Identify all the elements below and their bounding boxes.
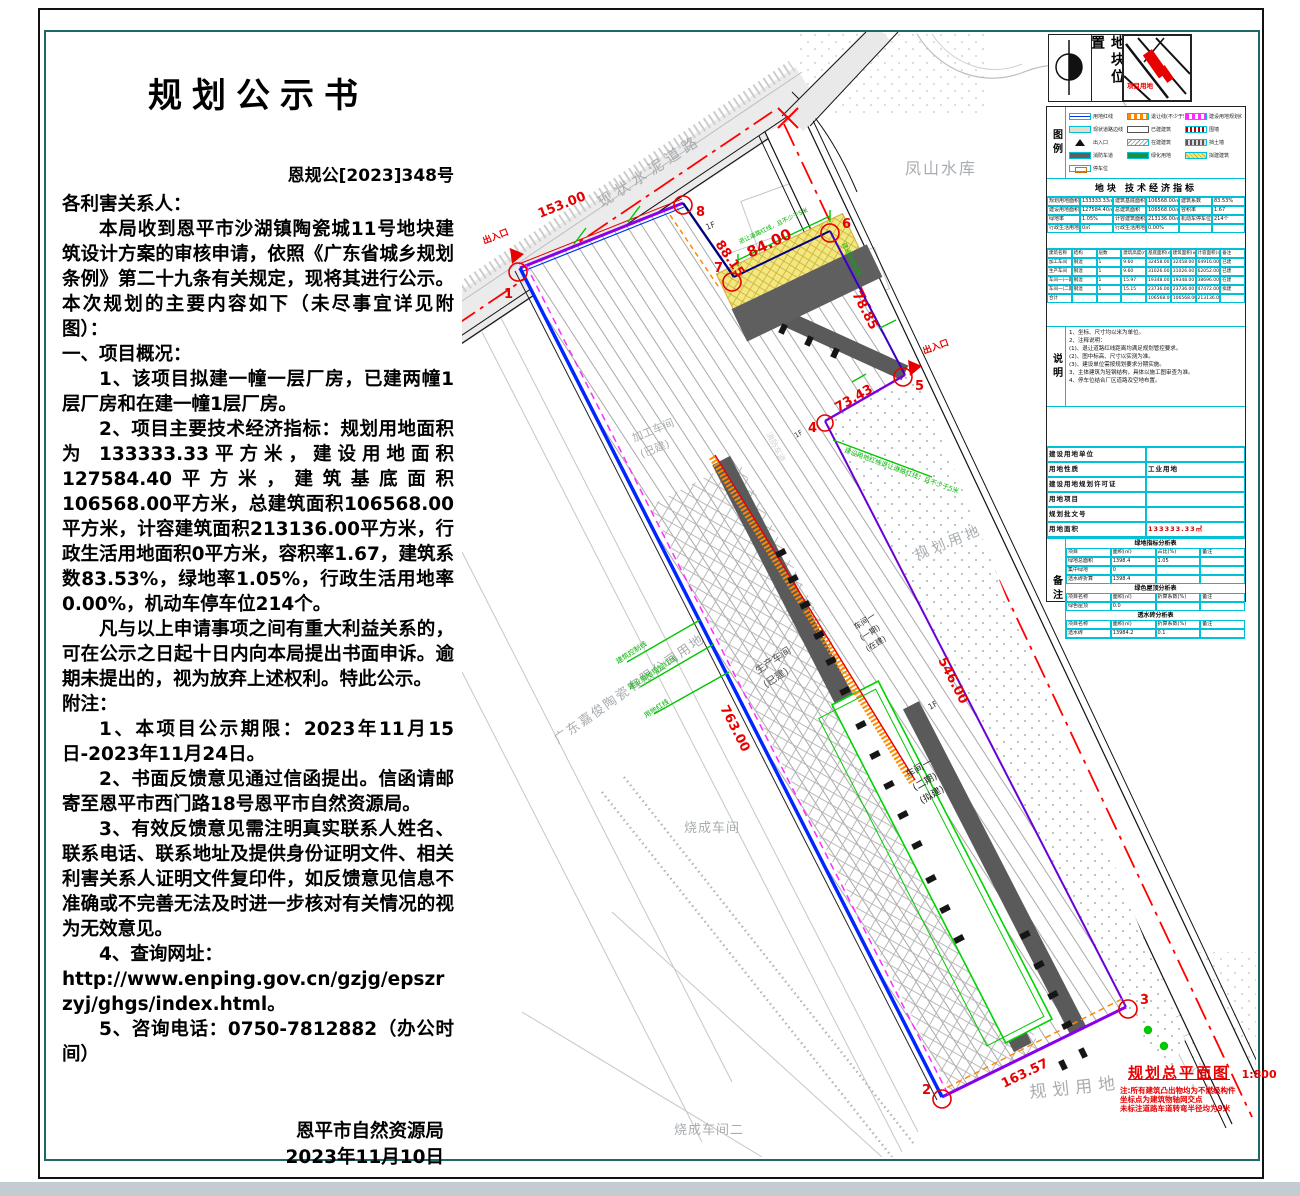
legend-item: 拟建建筑 (1185, 150, 1242, 162)
paragraph-item1: 1、该项目拟建一幢一层厂房，已建两幢1层厂房和在建一幢1层厂房。 (62, 367, 454, 417)
table-cell: 83.53% (1212, 197, 1245, 206)
table-cell: 0.00% (1146, 224, 1179, 233)
table-cell (1097, 294, 1122, 303)
table-cell: 23736.00 (1146, 285, 1171, 294)
table-cell: 面积(㎡) (1111, 620, 1156, 629)
note-2: 2、书面反馈意见通过信函提出。信函请邮寄至恩平市西门路18号恩平市自然资源局。 (62, 767, 454, 817)
table-cell: 213136.00㎡ (1146, 215, 1179, 224)
table-cell (1200, 557, 1245, 566)
legend-item: 现状道路边线 (1069, 123, 1126, 135)
table-cell: 0 (1111, 566, 1156, 575)
track-band-swatch-icon (1185, 139, 1207, 146)
red-band-swatch-icon (1185, 126, 1207, 133)
compass-box (1048, 34, 1092, 102)
table-cell: 钢混 (1072, 276, 1097, 285)
notes-title-box: 说明 (1047, 327, 1066, 406)
legend-item-label: 停车位 (1093, 165, 1108, 172)
table-cell (1212, 224, 1245, 233)
table-cell: 62052.00 (1196, 267, 1221, 276)
table-row: 规划用地面积133333.33㎡建筑基底面积106568.00㎡建筑系数83.5… (1047, 197, 1245, 206)
table-cell: 钢混 (1072, 267, 1097, 276)
firing-workshop2-label: 烧成车间二 (674, 1122, 744, 1138)
legend-item: 用地红线 (1069, 110, 1126, 122)
legend-item-label: 绿化用地 (1151, 152, 1171, 159)
table-cell: 行政生活用地面积 (1047, 224, 1080, 233)
building-table-section: 建筑名称结构层数建筑高度(m)基底面积(㎡)建筑面积(㎡)计容面积(㎡)备注 加… (1047, 249, 1245, 327)
legend-item-label: 建设用地规划红线 (1209, 113, 1242, 120)
note-3: 3、有效反馈意见需注明真实联系人姓名、联系电话、联系地址及提供身份证明文件、相关… (62, 817, 454, 942)
document-number: 恩规公[2023]348号 (62, 161, 454, 186)
table-cell (1146, 492, 1245, 507)
table-cell: 1 (1097, 267, 1122, 276)
note-line: 4、停车位结合厂区道路及空地布置。 (1069, 377, 1242, 385)
table-cell: 47472.00 (1196, 285, 1221, 294)
plan-note-3: 未标注道路车道转弯半径均为9米 (1120, 1104, 1236, 1113)
table-cell: 结构 (1072, 249, 1097, 258)
table-cell: 19348.00 (1146, 276, 1171, 285)
table-cell: 1 (1097, 285, 1122, 294)
legend-item-label: 用地红线 (1093, 113, 1113, 120)
table-cell: 钢混 (1072, 285, 1097, 294)
table-cell: 建筑基底面积 (1113, 197, 1146, 206)
paragraph-intro: 本局收到恩平市沙湖镇陶瓷城11号地块建筑设计方案的审核申请，依照《广东省城乡规划… (62, 217, 454, 342)
table-row: 用地面积133333.33㎡ (1047, 522, 1245, 537)
notice-document: 规划公示书 恩规公[2023]348号 各利害关系人： 本局收到恩平市沙湖镇陶瓷… (62, 44, 454, 1169)
table-cell: 拟建 (1220, 285, 1245, 294)
table-row: 行政生活用地面积0㎡行政生活用地率0.00% (1047, 224, 1245, 233)
table-cell (1200, 629, 1245, 638)
table-cell: 基底面积(㎡) (1146, 249, 1171, 258)
table-cell: 生产车间 (1047, 267, 1072, 276)
white-rect-swatch-icon (1127, 126, 1149, 133)
table-cell: 项目 (1066, 548, 1111, 557)
table-row: 绿地率1.05%计容建筑面积213136.00㎡机动车停车位214个 (1047, 215, 1245, 224)
table-cell: 1398.4 (1111, 557, 1156, 566)
table-row: 绿色屋顶0.0 (1066, 602, 1245, 611)
table-row: 项目面积(㎡)占比(%)备注 (1066, 548, 1245, 557)
table-cell: 计容面积(㎡) (1196, 249, 1221, 258)
location-minimap: 项目用地 (1122, 34, 1192, 102)
blank-section (1047, 407, 1245, 447)
table-cell (1146, 447, 1245, 462)
table-cell: 9.60 (1121, 267, 1146, 276)
table-row: 绿地总面积1398.41.05 (1066, 557, 1245, 566)
table-cell: 已建 (1220, 267, 1245, 276)
table-cell: 折算系数(%) (1156, 593, 1201, 602)
legend-item: 停车位 (1069, 163, 1126, 175)
table-cell: 总建筑面积 (1113, 206, 1146, 215)
permeable-brick-table: 项目名称面积(㎡)折算系数(%)备注透水砖13984.20.1折算绿地1398.… (1066, 620, 1245, 639)
table-cell: 1.05 (1156, 557, 1201, 566)
table-cell: 占比(%) (1156, 548, 1201, 557)
table-row: 项目名称面积(㎡)折算系数(%)备注 (1066, 620, 1245, 629)
notes-section: 说明 1、坐标、尺寸均以米为单位。2、注释说明：(1)、退让道路红线距离均满足规… (1047, 327, 1245, 407)
note-line: (3)、建设单位需按规划要求分期实施。 (1069, 361, 1242, 369)
green-roof-table: 项目名称面积(㎡)折算系数(%)备注绿色屋顶0.0 (1066, 593, 1245, 611)
table-cell (1200, 566, 1245, 575)
table-cell: 31026.00 (1146, 267, 1171, 276)
table-row: 加工车间钢混19.6032458.0032458.0064916.00已建 (1047, 258, 1245, 267)
firing-workshop-label: 烧成车间 (684, 820, 740, 836)
table-cell: 透水砖折算 (1066, 575, 1111, 584)
table-cell: 行政生活用地率 (1113, 224, 1146, 233)
table-cell: 213136.00 (1196, 294, 1221, 303)
table-row: 建筑名称结构层数建筑高度(m)基底面积(㎡)建筑面积(㎡)计容面积(㎡)备注 (1047, 249, 1245, 258)
plan-scale: 1:800 (1242, 1068, 1277, 1081)
table-cell: 容积率 (1179, 206, 1212, 215)
table-cell: 133333.33㎡ (1080, 197, 1113, 206)
paragraph-appeal: 凡与以上申请事项之间有重大利益关系的，可在公示之日起十日内向本局提出书面申诉。逾… (62, 617, 454, 692)
legend-item-label: 出入口 (1093, 139, 1108, 146)
legend-item-label: 围墙 (1209, 126, 1219, 133)
entrance-label-1: 出入口 (481, 226, 511, 247)
signature-block: 恩平市自然资源局 2023年11月10日 (62, 1117, 454, 1169)
point-2: 2 (922, 1083, 931, 1098)
legend-item: 建设用地规划红线 (1185, 110, 1242, 122)
plan-note-1: 注:所有建筑凸出物均为不燃级构件 (1120, 1086, 1236, 1095)
document-body: 各利害关系人： 本局收到恩平市沙湖镇陶瓷城11号地块建筑设计方案的审核申请，依照… (62, 192, 454, 1067)
legend-item: 围墙 (1185, 123, 1242, 135)
table-cell: 64916.00 (1196, 258, 1221, 267)
table-cell: 建设用地面积 (1047, 206, 1080, 215)
legend-section: 图例 用地红线退让线(不少于5米)建设用地规划红线现状道路边线已建建筑围墙出入口… (1047, 107, 1245, 179)
table-cell: 建筑系数 (1179, 197, 1212, 206)
table-row: 建设用地面积127584.40㎡总建筑面积106568.00㎡容积率1.67 (1047, 206, 1245, 215)
location-title: 地块位置 (1087, 35, 1127, 101)
black-tri-swatch-icon (1069, 139, 1091, 146)
magenta-dash-swatch-icon (1185, 113, 1207, 120)
beige-line-swatch-icon (1069, 126, 1091, 133)
minimap-site-label: 项目用地 (1127, 81, 1154, 90)
legend-item: 消防车道 (1069, 150, 1126, 162)
table-row: 建设用地规划许可证 (1047, 477, 1245, 492)
table-cell: 127584.40㎡ (1080, 206, 1113, 215)
table-cell: 32458.00 (1146, 258, 1171, 267)
table-cell: 106568.00 (1146, 294, 1171, 303)
table-cell: 备注 (1200, 593, 1245, 602)
table-cell: 15.97 (1121, 276, 1146, 285)
reservoir-label: 凤山水库 (905, 159, 977, 178)
table-cell: 1.05% (1080, 215, 1113, 224)
table-cell: 1.67 (1212, 206, 1245, 215)
legend-item-label: 退让线(不少于5米) (1151, 113, 1184, 120)
note-line: (1)、退让道路红线距离均满足规划管控要求。 (1069, 345, 1242, 353)
table-cell: 面积(㎡) (1111, 593, 1156, 602)
table-cell: 214个 (1212, 215, 1245, 224)
note-5-phone: 5、咨询电话：0750-7812882（办公时间） (62, 1017, 454, 1067)
table-cell (1121, 294, 1146, 303)
table-cell: 备注 (1220, 249, 1245, 258)
table-row: 车间一(二期)钢混115.1523736.0023736.0047472.00拟… (1047, 285, 1245, 294)
hatch-rect-swatch-icon (1127, 139, 1149, 146)
green-table-title: 绿地指标分析表 (1066, 539, 1245, 548)
legend-title-box: 图例 (1047, 107, 1066, 178)
notes-title: 说明 (1049, 353, 1064, 381)
table-cell: 规划批文号 (1047, 507, 1146, 522)
econ-table: 规划用地面积133333.33㎡建筑基底面积106568.00㎡建筑系数83.5… (1047, 197, 1245, 233)
document-title: 规划公示书 (62, 68, 454, 117)
issue-date: 2023年11月10日 (62, 1143, 444, 1169)
table-cell: 38696.00 (1196, 276, 1221, 285)
table-cell: 面积(㎡) (1111, 548, 1156, 557)
legend-item-label: 已建建筑 (1151, 126, 1171, 133)
table-cell: 建设用地单位 (1047, 447, 1146, 462)
table-row: 建设用地单位 (1047, 447, 1245, 462)
table-cell: 绿地率 (1047, 215, 1080, 224)
plan-title-block: 规划总平面图 1:800 (1128, 1062, 1277, 1083)
legend-item: 已建建筑 (1127, 123, 1184, 135)
legend-item: 挡土墙 (1185, 136, 1242, 148)
table-cell: 机动车停车位 (1179, 215, 1212, 224)
table-cell (1200, 638, 1245, 639)
note-4: 4、查询网址： (62, 942, 454, 967)
table-cell: 规划用地面积 (1047, 197, 1080, 206)
table-cell (1072, 294, 1097, 303)
note-line: 1、坐标、尺寸均以米为单位。 (1069, 329, 1242, 337)
legend-item-label: 消防车道 (1093, 152, 1113, 159)
table-cell: 1 (1097, 258, 1122, 267)
blue-line-swatch-icon (1069, 113, 1091, 120)
table-cell: 23736.00 (1171, 285, 1196, 294)
paragraph-item2: 2、项目主要技术经济指标：规划用地面积为 133333.33平方米，建设用地面积… (62, 417, 454, 617)
table-row: 规划批文号 (1047, 507, 1245, 522)
building-table-header: 建筑名称结构层数建筑高度(m)基底面积(㎡)建筑面积(㎡)计容面积(㎡)备注 (1047, 249, 1245, 258)
econ-table-title: 地块 技术经济指标 (1047, 179, 1245, 197)
green-label-planning-redline: 建设用地规划红线 (626, 654, 678, 692)
table-cell: 车间一(一期) (1047, 276, 1072, 285)
table-row: 透水砖13984.20.1 (1066, 629, 1245, 638)
table-cell: 在建 (1220, 276, 1245, 285)
table-cell (1220, 294, 1245, 303)
note-line: (2)、图中标高、尺寸以实测为准。 (1069, 353, 1242, 361)
table-cell: 集中绿地 (1066, 566, 1111, 575)
table-cell: 用地性质 (1047, 462, 1146, 477)
table-cell: 项目名称 (1066, 620, 1111, 629)
table-cell (1200, 602, 1245, 611)
table-cell: 19348.00 (1171, 276, 1196, 285)
entrance-label-2: 出入口 (921, 336, 950, 357)
yellow-hatch-swatch-icon (1185, 152, 1207, 159)
table-cell: 106568.00㎡ (1146, 197, 1179, 206)
table-cell: 133333.33㎡ (1146, 522, 1245, 537)
permeable-table-title: 透水砖分析表 (1066, 611, 1245, 620)
plan-title: 规划总平面图 (1128, 1062, 1230, 1083)
remark-title-box: 备注 (1047, 539, 1066, 639)
building-table: 加工车间钢混19.6032458.0032458.0064916.00已建生产车… (1047, 258, 1245, 303)
legend-item: 绿化用地 (1127, 150, 1184, 162)
table-cell: 用地面积 (1047, 522, 1146, 537)
notes-list: 1、坐标、尺寸均以米为单位。2、注释说明：(1)、退让道路红线距离均满足规划管控… (1066, 327, 1245, 406)
table-cell (1156, 575, 1201, 584)
table-row: 项目名称面积(㎡)折算系数(%)备注 (1066, 593, 1245, 602)
table-cell: 1 (1097, 276, 1122, 285)
table-cell: 32458.00 (1171, 258, 1196, 267)
page: 规划公示书 恩规公[2023]348号 各利害关系人： 本局收到恩平市沙湖镇陶瓷… (0, 0, 1300, 1196)
table-cell: 工业用地 (1146, 462, 1245, 477)
legend-title: 图例 (1049, 129, 1064, 157)
table-cell: 0㎡ (1080, 224, 1113, 233)
point-8: 8 (696, 205, 705, 220)
table-cell: 106568.00㎡ (1146, 206, 1179, 215)
query-url[interactable]: http://www.enping.gov.cn/gzjg/epszrzyj/g… (62, 967, 454, 1017)
table-cell: 106568.00 (1171, 294, 1196, 303)
note-line: 3、主体建筑为轻钢结构，具体以施工图审查为准。 (1069, 369, 1242, 377)
table-cell: 建设用地规划许可证 (1047, 477, 1146, 492)
point-5: 5 (915, 379, 924, 394)
fields-section: 建设用地单位用地性质工业用地建设用地规划许可证用地项目规划批文号用地面积1333… (1047, 447, 1245, 539)
gray-rect-swatch-icon (1069, 152, 1091, 159)
table-cell (1156, 566, 1201, 575)
table-cell: 15.15 (1121, 285, 1146, 294)
table-cell (1179, 224, 1212, 233)
plan-note-2: 坐标点为建筑物轴网交点 (1120, 1095, 1236, 1104)
analysis-tables: 绿地指标分析表 项目面积(㎡)占比(%)备注绿地总面积1398.41.05集中绿… (1066, 539, 1245, 639)
table-cell: 备注 (1200, 620, 1245, 629)
legend-grid: 用地红线退让线(不少于5米)建设用地规划红线现状道路边线已建建筑围墙出入口在建建… (1066, 107, 1245, 178)
remark-title: 备注 (1049, 575, 1064, 603)
table-cell: 用地项目 (1047, 492, 1146, 507)
econ-indicators-section: 地块 技术经济指标 规划用地面积133333.33㎡建筑基底面积106568.0… (1047, 179, 1245, 249)
legend-item-label: 拟建建筑 (1209, 152, 1229, 159)
table-row: 用地性质工业用地 (1047, 462, 1245, 477)
orange-box-swatch-icon (1069, 165, 1091, 172)
table-cell: 车间一(二期) (1047, 285, 1072, 294)
legend-item: 出入口 (1069, 136, 1126, 148)
green-label-land-redline: 用地红线 (642, 697, 670, 720)
table-cell: 31026.00 (1171, 267, 1196, 276)
note-line: 2、注释说明： (1069, 337, 1242, 345)
table-cell: 建筑名称 (1047, 249, 1072, 258)
point-1: 1 (504, 287, 513, 302)
table-cell: 项目名称 (1066, 593, 1111, 602)
legend-item: 退让线(不少于5米) (1127, 110, 1184, 122)
planning-land-label-2: 规划用地 (1028, 1073, 1122, 1103)
table-cell: 1398.4 (1111, 638, 1156, 639)
table-cell: 13984.2 (1111, 629, 1156, 638)
fields-table: 建设用地单位用地性质工业用地建设用地规划许可证用地项目规划批文号用地面积1333… (1047, 447, 1245, 539)
table-row: 用地项目 (1047, 492, 1245, 507)
table-cell: 建筑面积(㎡) (1171, 249, 1196, 258)
table-cell: 9.60 (1121, 258, 1146, 267)
table-cell: 绿地总面积 (1066, 557, 1111, 566)
table-cell: 折算绿地 (1066, 638, 1111, 639)
table-cell: 透水砖 (1066, 629, 1111, 638)
point-7: 7 (714, 261, 723, 276)
orange-dash-swatch-icon (1127, 113, 1149, 120)
desktop-strip (0, 1182, 1300, 1196)
table-row: 透水砖折算1398.4 (1066, 575, 1245, 584)
note-1: 1、本项目公示期限：2023年11月15日-2023年11月24日。 (62, 717, 454, 767)
salutation: 各利害关系人： (62, 192, 454, 217)
roof-table-title: 绿色屋顶分析表 (1066, 584, 1245, 593)
remark-section: 备注 绿地指标分析表 项目面积(㎡)占比(%)备注绿地总面积1398.41.05… (1047, 539, 1245, 639)
location-title-box: 地块位置 (1091, 34, 1123, 102)
table-cell (1156, 638, 1201, 639)
info-panel: 图例 用地红线退让线(不少于5米)建设用地规划红线现状道路边线已建建筑围墙出入口… (1046, 106, 1246, 602)
table-row: 合计106568.00106568.00213136.00 (1047, 294, 1245, 303)
table-cell: 计容建筑面积 (1113, 215, 1146, 224)
heading-overview: 一、项目概况： (62, 342, 454, 367)
green-rect-swatch-icon (1127, 152, 1149, 159)
table-cell: 层数 (1097, 249, 1122, 258)
green-indicator-table: 项目面积(㎡)占比(%)备注绿地总面积1398.41.05集中绿地0透水砖折算1… (1066, 548, 1245, 584)
point-6: 6 (842, 217, 851, 232)
legend-item-label: 挡土墙 (1209, 139, 1224, 146)
table-cell: 已建 (1220, 258, 1245, 267)
minimap-svg: 项目用地 (1124, 36, 1190, 100)
table-cell: 建筑高度(m) (1121, 249, 1146, 258)
table-cell: 0.1 (1156, 629, 1201, 638)
table-cell: 绿色屋顶 (1066, 602, 1111, 611)
table-cell: 备注 (1200, 548, 1245, 557)
legend-item: 在建建筑 (1127, 136, 1184, 148)
table-cell: 加工车间 (1047, 258, 1072, 267)
table-cell: 钢混 (1072, 258, 1097, 267)
table-cell (1146, 477, 1245, 492)
table-cell: 折算系数(%) (1156, 620, 1201, 629)
issuing-authority: 恩平市自然资源局 (62, 1117, 444, 1143)
table-row: 集中绿地0 (1066, 566, 1245, 575)
point-4: 4 (808, 421, 817, 436)
table-cell: 合计 (1047, 294, 1072, 303)
table-row: 折算绿地1398.4 (1066, 638, 1245, 639)
table-cell (1146, 507, 1245, 522)
legend-item-label: 在建建筑 (1151, 139, 1171, 146)
table-row: 车间一(一期)钢混115.9719348.0019348.0038696.00在… (1047, 276, 1245, 285)
table-cell (1156, 602, 1201, 611)
heading-notes: 附注： (62, 692, 454, 717)
floor-mark-1: 1F (704, 220, 717, 232)
plan-notes: 注:所有建筑凸出物均为不燃级构件 坐标点为建筑物轴网交点 未标注道路车道转弯半径… (1120, 1086, 1236, 1113)
point-3: 3 (1140, 993, 1149, 1008)
table-cell: 0.0 (1111, 602, 1156, 611)
legend-item-label: 现状道路边线 (1093, 126, 1123, 133)
table-row: 生产车间钢混19.6031026.0031026.0062052.00已建 (1047, 267, 1245, 276)
table-cell (1200, 575, 1245, 584)
table-cell: 1398.4 (1111, 575, 1156, 584)
north-compass-icon (1049, 35, 1090, 100)
